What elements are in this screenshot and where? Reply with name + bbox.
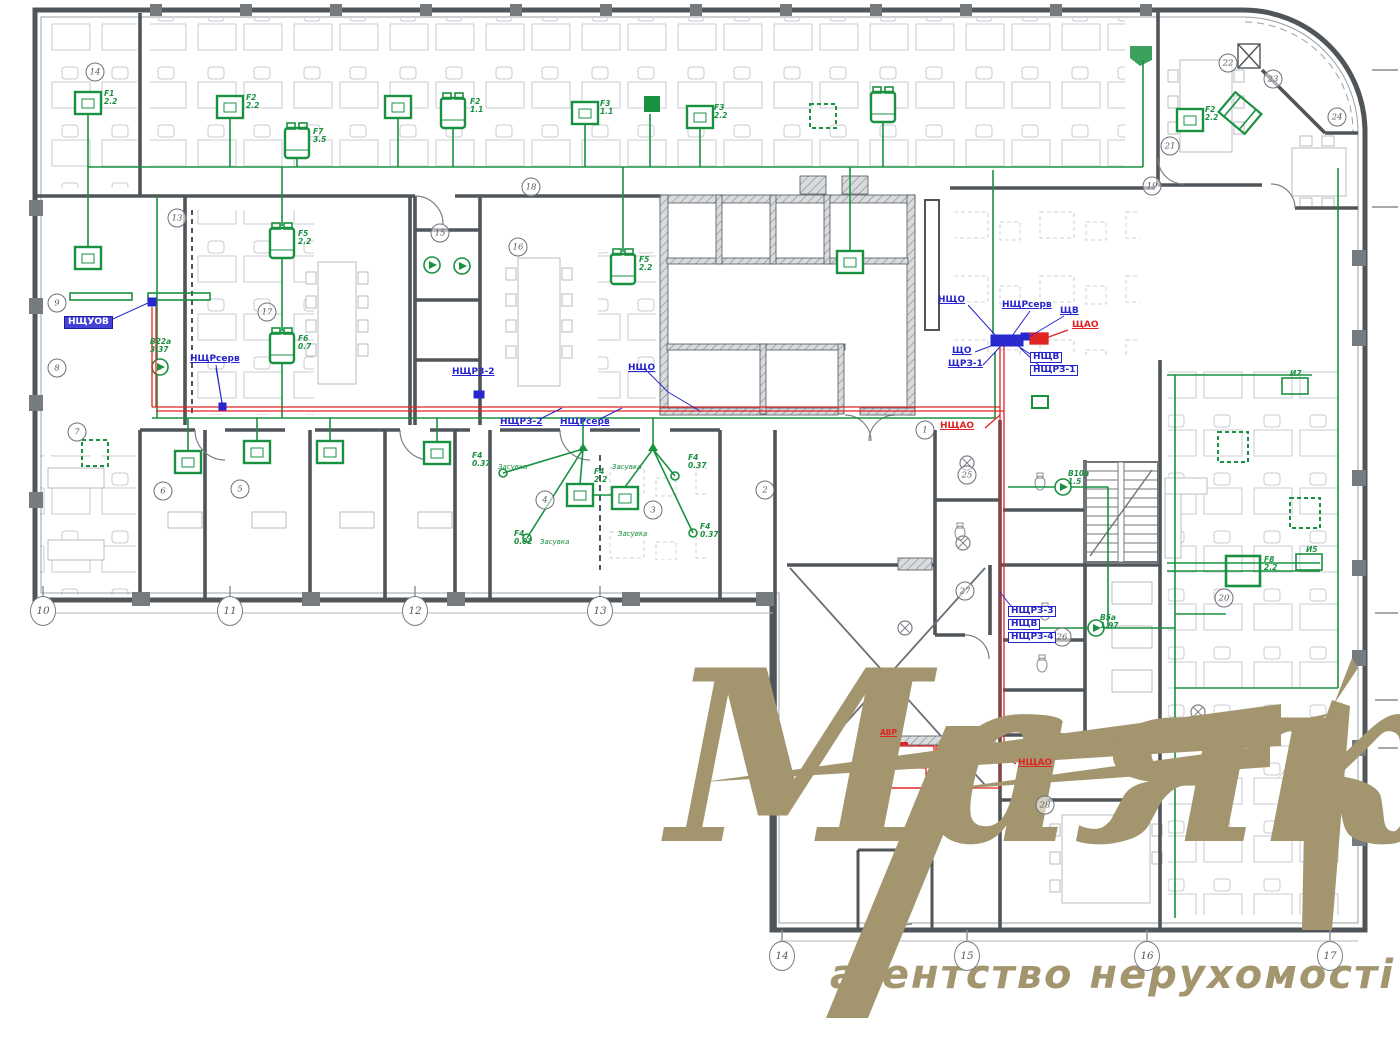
equip-label: В5а 1.97 [1100, 614, 1119, 629]
panel-label-nshcho: НЩО [938, 296, 965, 305]
equip-label: F6 0.7 [298, 335, 311, 350]
equip-label: F3 2.2 [714, 104, 727, 119]
panel-label-nshchrz3: НЩРЗ-3 [1008, 606, 1056, 617]
room-number: 6 [154, 482, 173, 501]
axis-bubble-13: 13 [587, 596, 613, 626]
equip-label: F4 0.37 [700, 523, 719, 538]
room-number: 17 [258, 303, 277, 322]
panel-label-nshchao-mid: НЩАО [940, 422, 974, 431]
equip-label: В10а 1.5 [1068, 470, 1089, 485]
equip-label: F7 3.5 [313, 128, 326, 143]
panel-label-shchao: ЩАО [1072, 321, 1099, 330]
room-number: 21 [1161, 137, 1180, 156]
watermark-subtitle: агентство нерухомості [830, 952, 1395, 998]
equip-label: F5 2.2 [298, 230, 311, 245]
valve-label: Засувка [618, 531, 647, 538]
room-number: 20 [1215, 589, 1234, 608]
room-number: 7 [68, 423, 87, 442]
panel-label-nshchrz1: НЩРЗ-1 [1030, 365, 1078, 376]
equip-label: F2 2.2 [246, 94, 259, 109]
panel-label-nshchv: НЩВ [1030, 352, 1062, 363]
panel-label-nshchrz4: НЩРЗ-4 [1008, 632, 1056, 643]
panel-label-nshchrserv-corridor: НЩРсерв [560, 418, 610, 427]
room-number: 14 [86, 63, 105, 82]
room-number: 9 [48, 294, 67, 313]
room-number: 1 [916, 421, 935, 440]
room-number: 15 [431, 224, 450, 243]
room-number: 27 [956, 582, 975, 601]
equip-label: В22а 3.37 [150, 338, 171, 353]
panel-label-shchv: ЩВ [1060, 307, 1079, 316]
valve-label: Засувка [612, 464, 641, 471]
panel-label-nshchrserv: НЩРсерв [190, 355, 240, 364]
room-number: 18 [522, 178, 541, 197]
equip-label: F2 2.2 [1205, 106, 1218, 121]
axis-bubble-12: 12 [402, 596, 428, 626]
panel-label-nshchuov: НЩУОВ [64, 316, 113, 329]
panel-label-shcho: ЩО [952, 347, 972, 356]
room-number: 22 [1219, 54, 1238, 73]
equip-label: И5 [1306, 546, 1318, 554]
axis-bubble-10: 10 [30, 596, 56, 626]
room-number: 13 [168, 209, 187, 228]
room-number: 16 [509, 238, 528, 257]
room-number: 4 [536, 491, 555, 510]
axis-bubble-15: 15 [954, 941, 980, 971]
room-number: 2 [756, 481, 775, 500]
equip-label: F1 2.2 [104, 90, 117, 105]
equip-label: F4 0.37 [688, 454, 707, 469]
panel-label-avr: АВР [880, 729, 897, 737]
panel-label-nshchrserv-cluster: НЩРсерв [1002, 301, 1052, 310]
panel-label-nshcho-corridor: НЩО [628, 364, 655, 373]
room-number: 5 [231, 480, 250, 499]
room-number: 3 [644, 501, 663, 520]
room-number: 25 [958, 466, 977, 485]
room-number: 19 [1143, 177, 1162, 196]
panel-label-shchrz1: ЩРЗ-1 [948, 360, 983, 369]
panel-label-nshchao-bottom: НЩАО [1018, 759, 1052, 768]
room-number: 8 [48, 359, 67, 378]
equip-label: F3 1.1 [600, 100, 613, 115]
equip-label: F4 0.02 [514, 530, 533, 545]
panel-label-nshchrz2-corridor: НЩРЗ-2 [500, 418, 542, 427]
staircase [1085, 462, 1158, 562]
room-number: 23 [1264, 70, 1283, 89]
equip-label: F4 2.2 [594, 468, 607, 483]
valve-label: Засувка [540, 539, 569, 546]
room-number: 28 [1036, 796, 1055, 815]
equip-label: F4 0.37 [472, 452, 491, 467]
equip-label: F8 2.2 [1264, 556, 1277, 571]
axis-bubble-17: 17 [1317, 941, 1343, 971]
axis-bubble-11: 11 [217, 596, 243, 626]
floor-plan-canvas: Маяк агентство нерухомості 10 11 12 13 1… [0, 0, 1400, 1050]
valve-label: Засувка [498, 464, 527, 471]
room-number: 24 [1328, 108, 1347, 127]
equip-label: И7 [1290, 370, 1302, 378]
equip-label: F2 1.1 [470, 98, 483, 113]
panel-label-nshchv-lower: НЩВ [1008, 619, 1040, 630]
axis-bubble-16: 16 [1134, 941, 1160, 971]
axis-bubble-14: 14 [769, 941, 795, 971]
equip-label: F5 2.2 [639, 256, 652, 271]
panel-label-nshchrz2: НЩРЗ-2 [452, 368, 494, 377]
